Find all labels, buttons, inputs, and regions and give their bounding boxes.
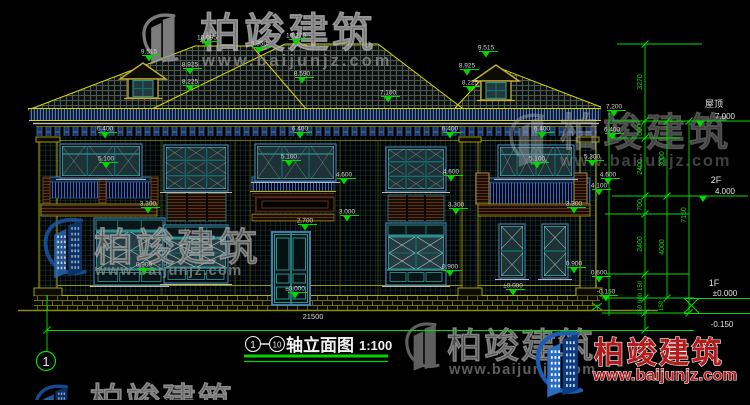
svg-text:1: 1 — [42, 354, 49, 369]
svg-text:3.300: 3.300 — [140, 201, 157, 208]
svg-text:6.400: 6.400 — [534, 126, 551, 133]
svg-text:0.900: 0.900 — [136, 262, 153, 269]
svg-text:6.400: 6.400 — [97, 126, 114, 133]
svg-text:1F: 1F — [709, 278, 720, 288]
svg-text:1: 1 — [250, 340, 256, 351]
svg-text:柏竣建筑: 柏竣建筑 — [90, 381, 234, 400]
svg-text:0.900: 0.900 — [566, 261, 583, 268]
svg-text:0.900: 0.900 — [442, 264, 459, 271]
svg-text:3.000: 3.000 — [339, 209, 356, 216]
svg-text:150: 150 — [638, 304, 644, 315]
svg-text:150: 150 — [659, 300, 665, 311]
svg-text:10.270: 10.270 — [286, 33, 306, 40]
svg-text:4.600: 4.600 — [336, 172, 353, 179]
svg-text:900: 900 — [638, 292, 644, 303]
svg-text:3000: 3000 — [659, 151, 666, 167]
svg-text:5.100: 5.100 — [529, 156, 546, 163]
svg-text:700: 700 — [637, 199, 644, 211]
svg-text:www.baijunjz.com: www.baijunjz.com — [94, 263, 243, 279]
svg-text:3.300: 3.300 — [448, 202, 465, 209]
svg-text:柏竣建筑: 柏竣建筑 — [594, 336, 724, 370]
svg-text:4.100: 4.100 — [591, 183, 608, 190]
svg-text:4.000: 4.000 — [715, 187, 736, 196]
svg-text:7.200: 7.200 — [606, 104, 623, 111]
svg-text:3270: 3270 — [637, 74, 644, 90]
svg-text:-0.150: -0.150 — [711, 320, 734, 329]
svg-text:5.100: 5.100 — [98, 156, 115, 163]
svg-text:5.300: 5.300 — [584, 154, 601, 161]
svg-text:±0.000: ±0.000 — [713, 289, 738, 298]
svg-text:±0.000: ±0.000 — [285, 286, 305, 293]
svg-text:150: 150 — [638, 280, 644, 291]
svg-text:4.600: 4.600 — [443, 169, 460, 176]
svg-text:8.925: 8.925 — [459, 63, 476, 70]
svg-text:8.225: 8.225 — [462, 80, 479, 87]
svg-text:-0.150: -0.150 — [597, 289, 616, 296]
svg-text:8.590: 8.590 — [294, 71, 311, 78]
svg-text:6.400: 6.400 — [292, 126, 309, 133]
svg-text:www.baijunjz.com: www.baijunjz.com — [201, 52, 392, 70]
svg-text:3.300: 3.300 — [566, 201, 583, 208]
svg-text:10.095: 10.095 — [197, 35, 217, 42]
svg-text:9.850: 9.850 — [251, 41, 268, 48]
svg-text:2400: 2400 — [637, 159, 644, 175]
svg-text:4000: 4000 — [659, 239, 666, 255]
svg-text:5.100: 5.100 — [281, 154, 298, 161]
svg-text:6.400: 6.400 — [442, 126, 459, 133]
svg-text:7150: 7150 — [681, 207, 688, 223]
svg-text:2.700: 2.700 — [297, 218, 314, 225]
svg-text:±0.000: ±0.000 — [503, 283, 523, 290]
svg-text:8.925: 8.925 — [182, 62, 199, 69]
svg-text:21500: 21500 — [303, 312, 324, 321]
svg-text:9.515: 9.515 — [141, 49, 158, 56]
svg-text:1:100: 1:100 — [359, 338, 392, 353]
svg-text:6.400: 6.400 — [604, 127, 621, 134]
svg-text:4.600: 4.600 — [600, 172, 617, 179]
svg-text:7.100: 7.100 — [380, 90, 397, 97]
svg-text:600: 600 — [637, 124, 644, 136]
svg-text:9.515: 9.515 — [478, 45, 495, 52]
svg-text:7.000: 7.000 — [715, 112, 736, 121]
svg-text:0.600: 0.600 — [591, 270, 608, 277]
svg-text:2F: 2F — [711, 175, 722, 185]
svg-text:10: 10 — [273, 341, 282, 350]
svg-text:8.225: 8.225 — [182, 79, 199, 86]
svg-text:屋顶: 屋顶 — [705, 99, 723, 109]
svg-text:2400: 2400 — [637, 236, 644, 252]
svg-text:www.baijunjz.com: www.baijunjz.com — [592, 367, 738, 384]
svg-text:轴立面图: 轴立面图 — [286, 335, 354, 355]
svg-text:柏竣建筑: 柏竣建筑 — [560, 112, 732, 155]
